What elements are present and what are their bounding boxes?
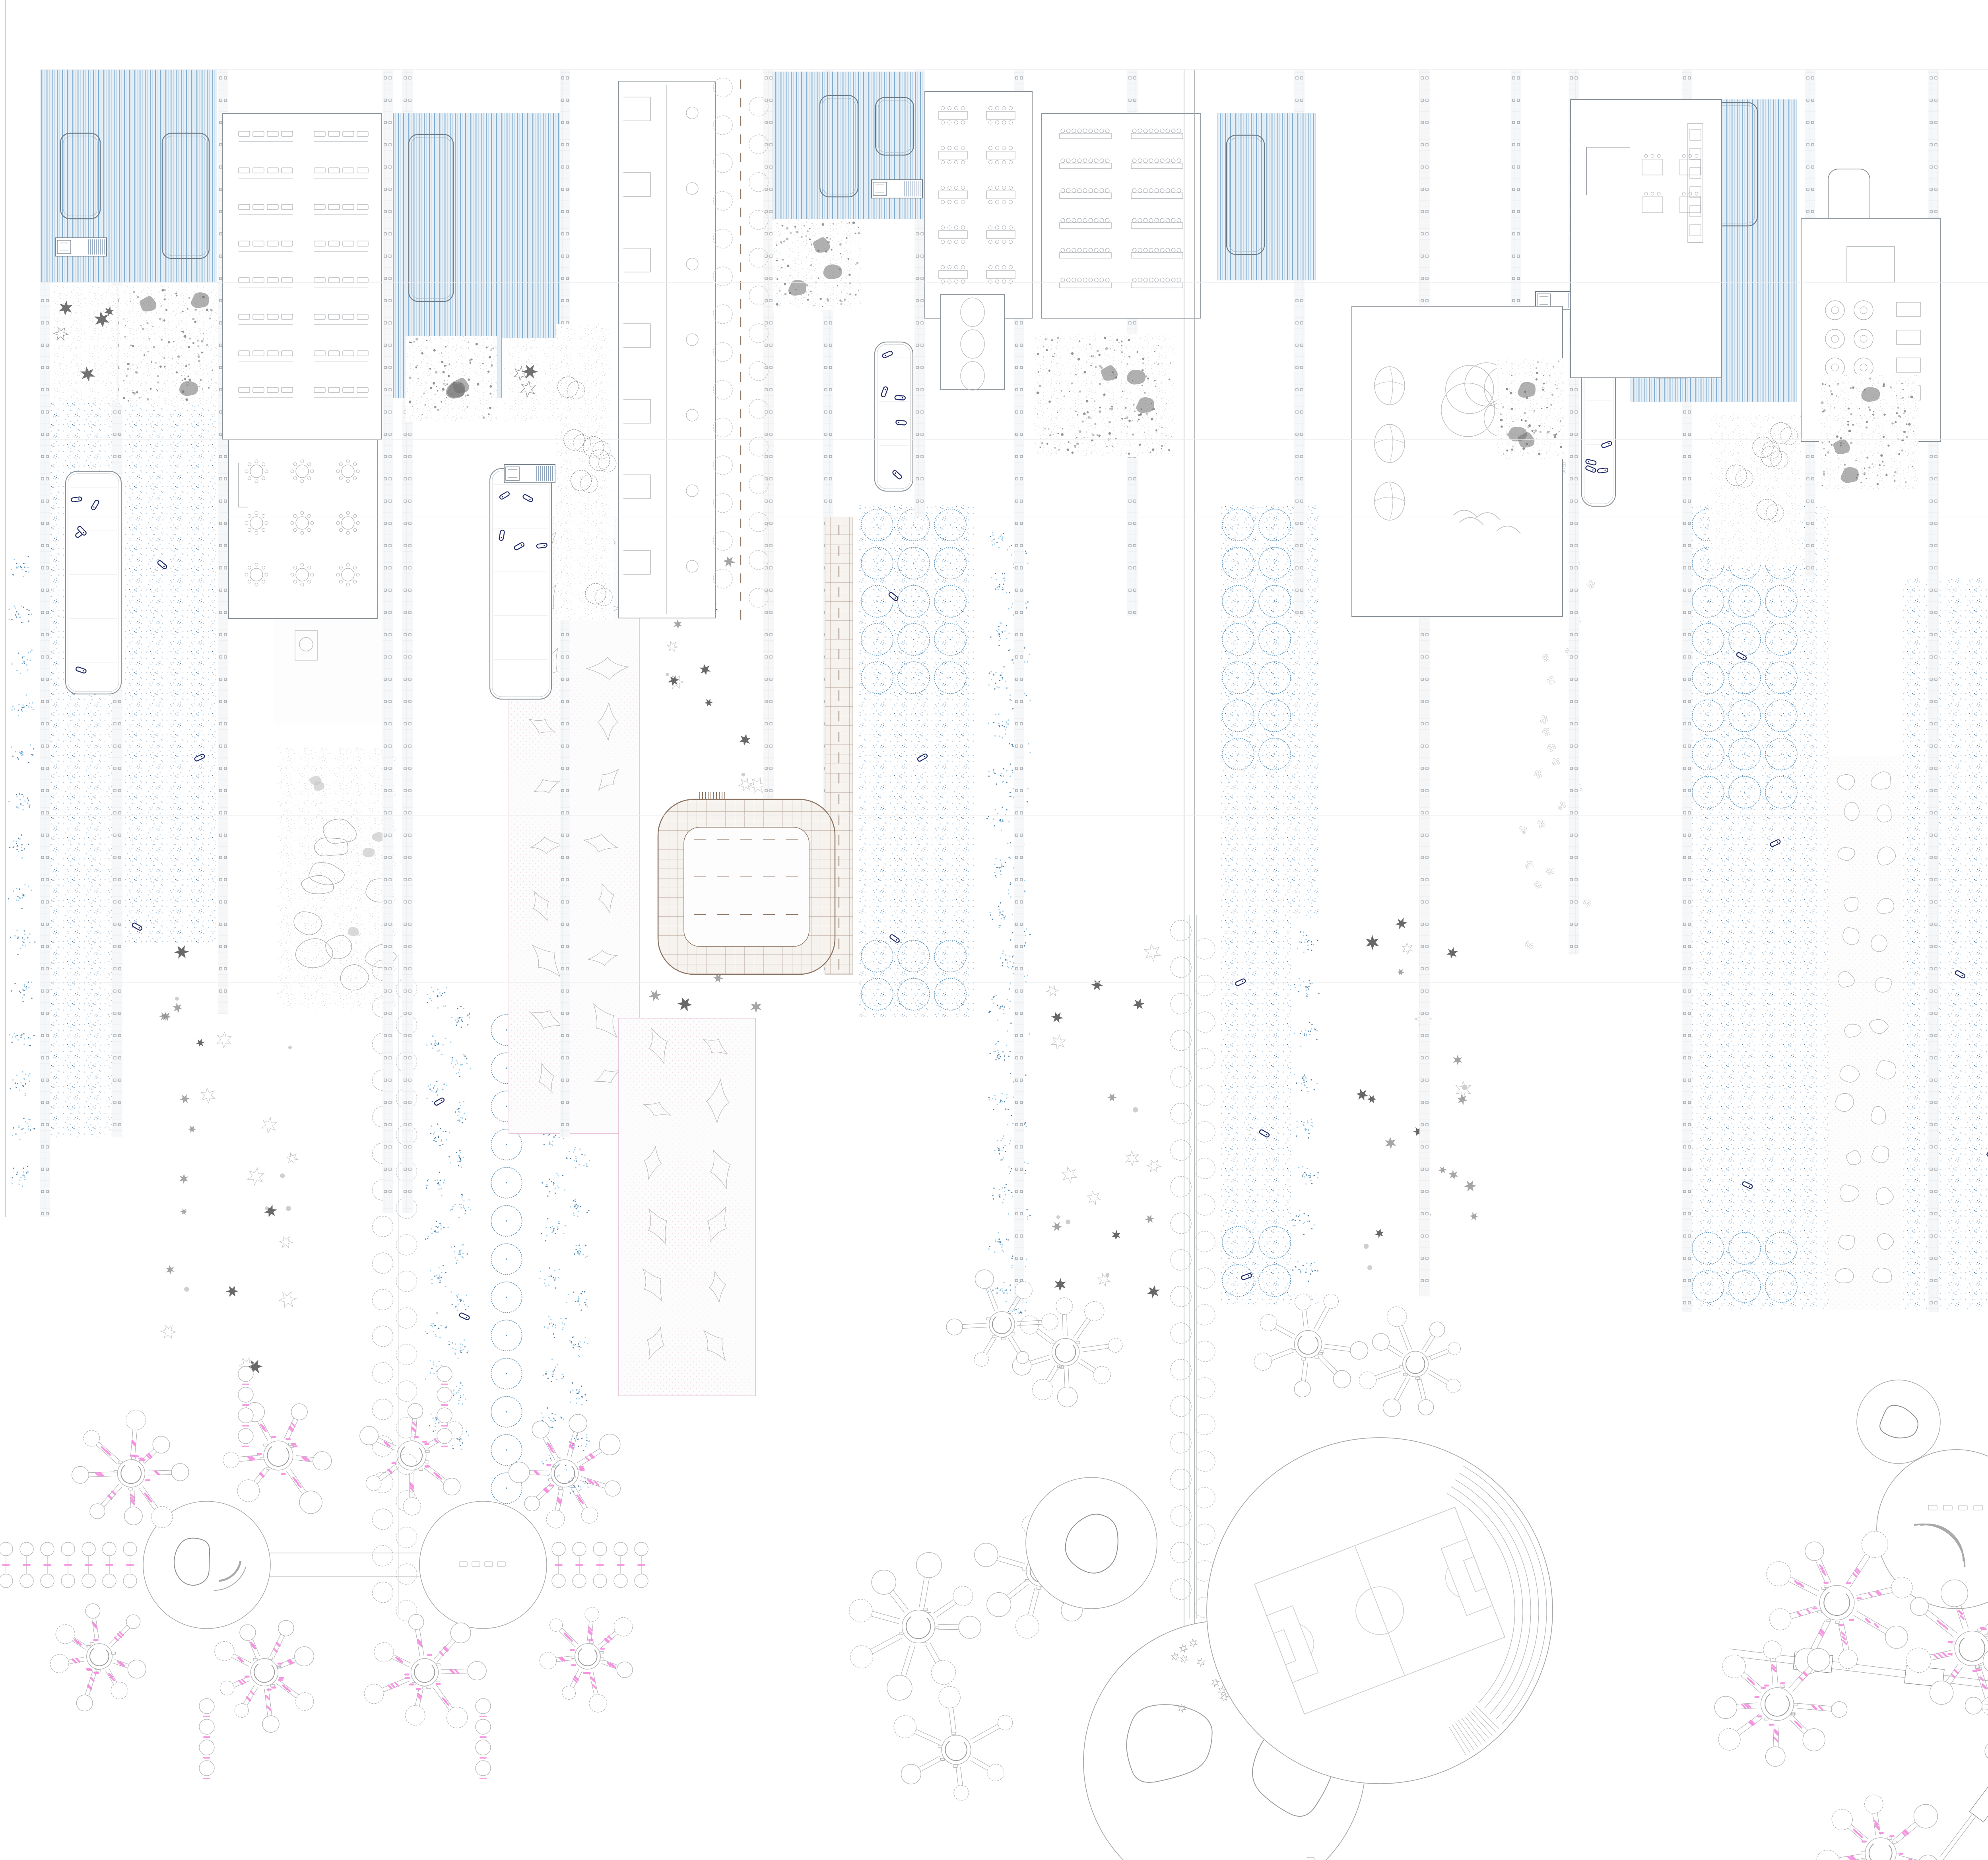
garden-patch-dense bbox=[406, 336, 497, 422]
building-balls bbox=[941, 294, 1004, 390]
field-band-blobflower bbox=[1829, 756, 1901, 1310]
dendrite-play-cluster bbox=[1254, 1294, 1368, 1397]
dendrite-play-cluster bbox=[894, 1686, 1013, 1800]
central-park bbox=[849, 1270, 1553, 1860]
dendrite-play-cluster bbox=[1714, 1641, 1847, 1767]
garden-patch-circles bbox=[1710, 414, 1801, 565]
navy-boat-marker bbox=[896, 420, 907, 425]
tree-lined-street bbox=[713, 78, 768, 620]
field-band-stars bbox=[159, 945, 298, 1374]
dendrite-play-cluster bbox=[1965, 1635, 1988, 1774]
field-band-circlegrid bbox=[859, 505, 974, 1018]
garden-patch-dense bbox=[1497, 358, 1564, 459]
dendrite-play-cluster bbox=[540, 1607, 633, 1712]
stair-core bbox=[872, 180, 922, 198]
dendrite-play-cluster bbox=[50, 1604, 146, 1711]
garden-patch-circles bbox=[556, 324, 616, 620]
navy-boat-marker bbox=[1598, 468, 1608, 473]
navy-boat-marker bbox=[71, 497, 82, 502]
dendrite-play-cluster bbox=[215, 1620, 314, 1732]
navy-boat-marker bbox=[895, 396, 905, 400]
building-kitchen bbox=[1571, 99, 1722, 378]
masterplan-canvas bbox=[0, 0, 1988, 1860]
garden-patch-dense bbox=[1034, 334, 1175, 457]
dendrite-play-cluster bbox=[1816, 1795, 1938, 1860]
garden-patch-star bbox=[52, 286, 117, 401]
field-band-speckle bbox=[124, 402, 215, 943]
path-bridge bbox=[1970, 1781, 1988, 1822]
building-benches bbox=[1042, 113, 1201, 318]
field-band-stars bbox=[1046, 944, 1161, 1298]
stair-core bbox=[56, 238, 107, 256]
building-tables bbox=[229, 439, 378, 618]
pond-plaza-circle bbox=[1026, 1477, 1157, 1609]
building-gym bbox=[1352, 306, 1563, 616]
layer-organic-parks bbox=[0, 1270, 1988, 1860]
stair-core bbox=[504, 465, 555, 483]
lap-pool bbox=[875, 342, 913, 491]
park-circle bbox=[419, 1501, 547, 1629]
pool-deck bbox=[1217, 113, 1316, 280]
dendrite-play-cluster bbox=[1359, 1307, 1460, 1417]
dendrite-play-cluster bbox=[1012, 1298, 1122, 1407]
running-track bbox=[658, 792, 835, 974]
garden-patch-dense bbox=[119, 286, 217, 405]
building-canteen bbox=[925, 91, 1032, 318]
soccer-stadium-circle bbox=[1207, 1438, 1553, 1784]
structural-column-strip bbox=[1419, 70, 1430, 1296]
field-band-cluster bbox=[985, 517, 1032, 1323]
lap-pool bbox=[490, 468, 551, 699]
structural-column-strip bbox=[382, 70, 393, 1213]
dendrite-play-cluster bbox=[364, 1614, 486, 1728]
building-dorm bbox=[223, 113, 382, 439]
dendrite-play-cluster bbox=[72, 1410, 189, 1528]
promenade-tree-band bbox=[1171, 915, 1215, 1619]
masterplan-drawing bbox=[0, 0, 1988, 1860]
dendrite-play-cluster bbox=[849, 1553, 981, 1701]
field-band-circlegrid bbox=[1690, 505, 1829, 1310]
building-slab bbox=[619, 81, 716, 618]
right-playground-park bbox=[1714, 1380, 1988, 1860]
garden-patch-star bbox=[502, 338, 559, 422]
park-path bbox=[1940, 1651, 1988, 1856]
field-band-batwing bbox=[619, 1018, 755, 1396]
field-band-cluster bbox=[1291, 919, 1335, 1294]
field-band-cluster bbox=[8, 545, 37, 1217]
garden-patch-dense bbox=[773, 219, 862, 310]
garden-patch-dense bbox=[1819, 374, 1918, 489]
navy-boat-marker bbox=[536, 543, 547, 548]
lap-pool bbox=[66, 471, 121, 694]
field-band-stars bbox=[1356, 918, 1479, 1270]
field-band-speckle bbox=[1901, 577, 1988, 1310]
field-band-bushes bbox=[278, 748, 396, 1010]
